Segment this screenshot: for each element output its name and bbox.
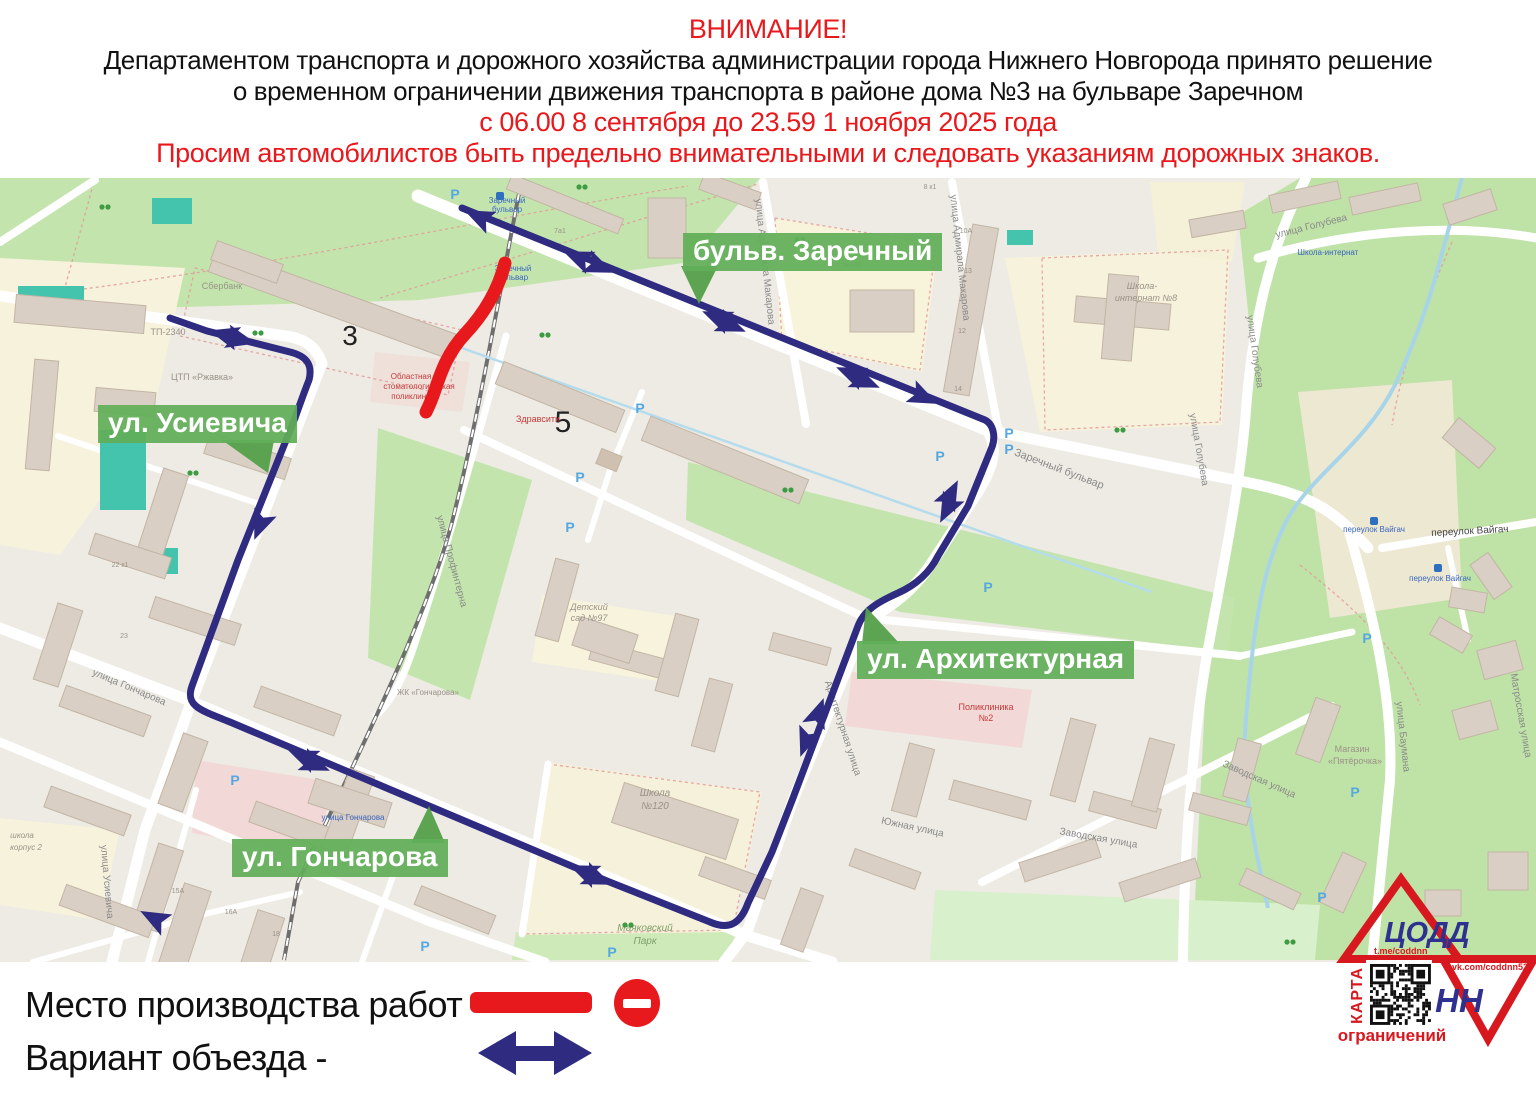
map-label: «Пятёрочка» [1328,756,1382,766]
legend-detour-label: Вариант объезда - [25,1037,327,1079]
map-label: улица Гончарова [321,813,385,822]
bus-stop-icon [1434,564,1442,572]
map-canvas: Заречный бульварЗаречныйбульварЗаречныйб… [0,178,1536,962]
map-label: 12 [958,328,966,335]
header: ВНИМАНИЕ! Департаментом транспорта и дор… [0,14,1536,169]
map-label: Сбербанк [202,281,242,291]
parking-icon: P [935,448,944,464]
street-badge-usievicha: ул. Усиевича [98,405,297,443]
map-label: корпус 2 [10,843,42,852]
header-attention: ВНИМАНИЕ! [0,14,1536,45]
parking-icon: P [1362,630,1371,646]
header-line1: Департаментом транспорта и дорожного хоз… [0,45,1536,76]
parking-icon: P [1317,889,1326,905]
street-badge-goncharova: ул. Гончарова [232,839,448,877]
map-label: Школа- [1127,281,1157,291]
parking-icon: P [1350,784,1359,800]
qr-code [1366,960,1432,1026]
legend-work-zone-label: Место производства работ - [25,984,483,1026]
map-label: Здравсити [516,414,560,424]
city-map: Заречный бульварЗаречныйбульварЗаречныйб… [0,178,1536,962]
map-label: интернат №8 [1115,293,1177,303]
map-label: №120 [641,801,669,812]
map-label: бульвар [492,205,523,214]
bus-stop-icon [1370,517,1378,525]
map-label: Областная [391,372,431,381]
street-badge-zarechny: бульв. Заречный [683,233,942,271]
parking-icon: P [983,579,992,595]
map-label: Поликлиника [958,702,1013,712]
map-label: 22 к1 [112,562,129,569]
street-badge-arkhitekturnaya: ул. Архитектурная [857,641,1134,679]
map-label: 18 [272,931,280,938]
traffic-restriction-announcement: ВНИМАНИЕ! Департаментом транспорта и дор… [0,0,1536,1094]
map-label: 15А [172,888,185,895]
map-label: 14 [954,386,962,393]
map-label: №2 [979,713,994,723]
map-label: переулок Вайгач [1409,574,1471,583]
map-label: 3 [342,320,358,351]
map-label: Парк [633,936,657,947]
parking-icon: P [607,944,616,960]
parking-icon: P [565,519,574,535]
map-label: 8 к1 [924,184,937,191]
map-label: 16А [225,909,238,916]
map-label: ЦТП «Ржавка» [171,372,233,382]
parking-icon: P [1004,441,1013,457]
parking-icon: P [1004,425,1013,441]
parking-icon: P [450,186,459,202]
map-label: школа [10,831,34,840]
legend-work-zone-icon [470,979,660,1027]
map-label: сад №97 [571,613,609,623]
bus-stop-icon [496,192,504,200]
header-appeal: Просим автомобилистов быть предельно вни… [0,138,1536,169]
map-label: Школа [640,788,671,799]
parking-icon: P [230,772,239,788]
qr-bottom-caption: ограничений [1338,1026,1447,1045]
map-label: 13 [964,268,972,275]
parking-icon: P [420,938,429,954]
map-label: ТП-2340 [151,327,186,337]
map-label: 23 [120,633,128,640]
parking-icon: P [575,469,584,485]
map-label: 10А [960,228,973,235]
header-dates: с 06.00 8 сентября до 23.59 1 ноября 202… [0,107,1536,138]
map-label: Детский [569,602,607,612]
map-label: Магазин [1335,744,1370,754]
map-label: 7а1 [554,228,566,235]
map-label: Заречный [489,196,526,205]
header-line2: о временном ограничении движения транспо… [0,76,1536,107]
qr-side-caption: КАРТА [1349,967,1366,1024]
logo-city-text: НН [1435,982,1484,1019]
map-label: переулок Вайгач [1343,525,1405,534]
map-label: ЖК «Гончарова» [397,688,460,697]
map-label: Школа-интернат [1298,248,1359,257]
legend-detour-icon [478,1031,592,1075]
logo-vk-text: vk.com/coddnn52 [1452,962,1528,972]
parking-icon: P [635,400,644,416]
